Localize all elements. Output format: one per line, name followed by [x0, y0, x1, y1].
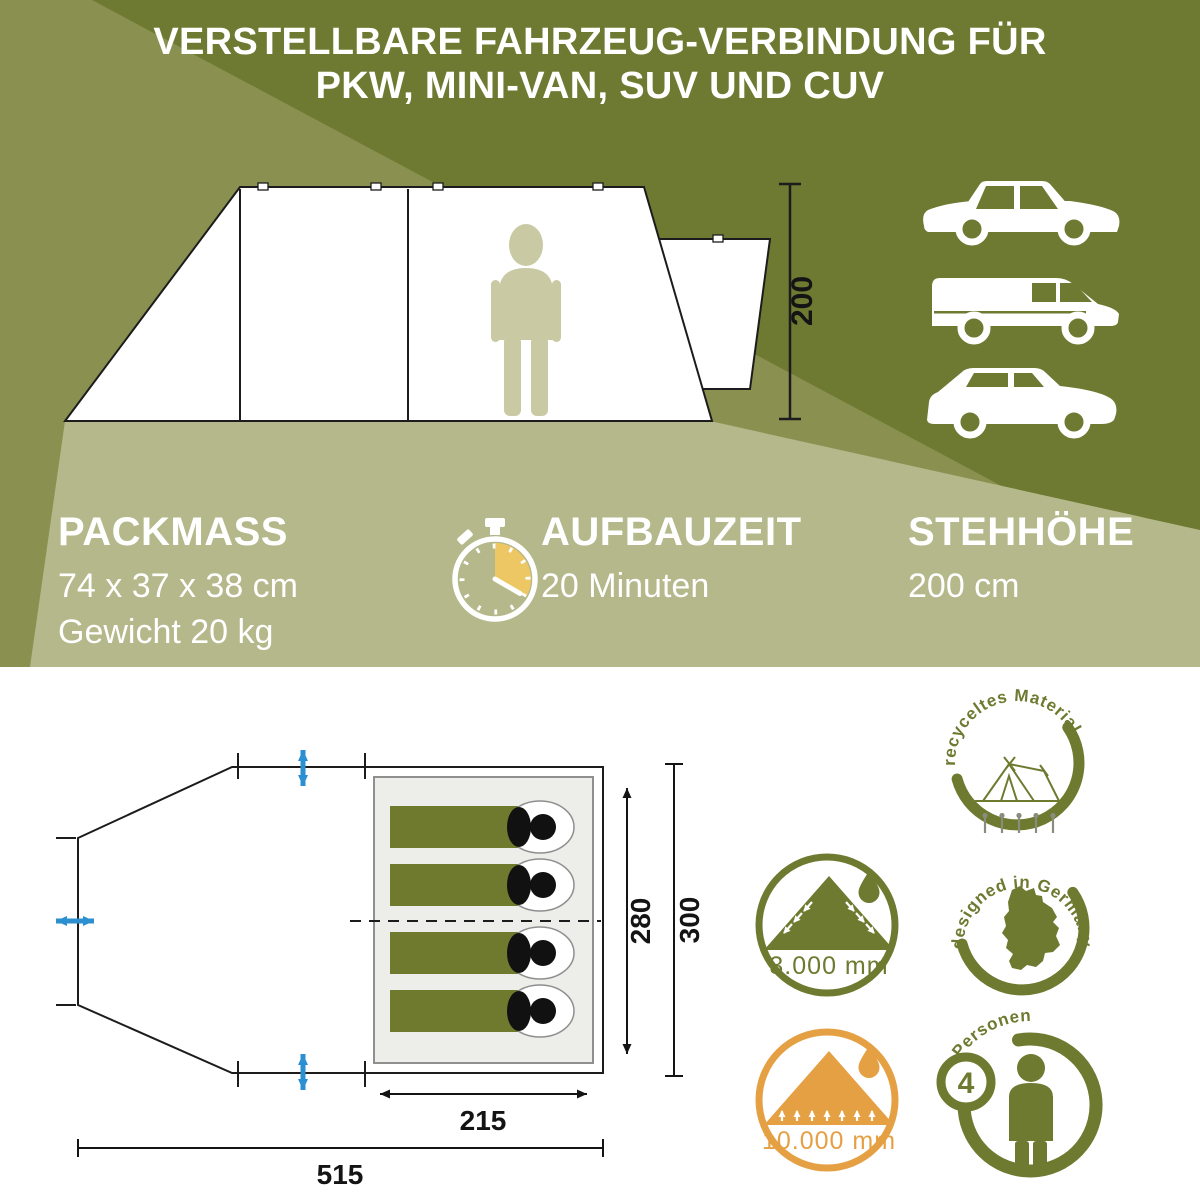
badge-watercolumn-3000: 3.000 mm [759, 857, 895, 993]
badge-3000-label: 3.000 mm [769, 952, 888, 980]
suv-icon [922, 360, 1122, 446]
spec-stehhoehe-heading: STEHHÖHE [908, 510, 1134, 555]
spec-stehhoehe-value: 200 cm [908, 564, 1134, 610]
sleeping-bag [390, 859, 574, 911]
spec-stehhoehe: STEHHÖHE 200 cm [908, 510, 1134, 610]
spec-packmass-weight: Gewicht 20 kg [58, 610, 298, 656]
headline-line1: VERSTELLBARE FAHRZEUG-VERBINDUNG FÜR [0, 20, 1200, 64]
badge-10000-label: 10.000 mm [762, 1127, 896, 1155]
person-icon [1009, 1054, 1053, 1171]
spec-packmass-heading: PACKMASS [58, 510, 298, 555]
sleeping-bag [390, 801, 574, 853]
dim-outer-width: 300 [674, 897, 705, 944]
badge-persons: Personen 4 [941, 1006, 1096, 1171]
headline: VERSTELLBARE FAHRZEUG-VERBINDUNG FÜR PKW… [0, 20, 1200, 108]
badge-watercolumn-10000: 10.000 mm [759, 1032, 896, 1168]
stopwatch-icon [447, 516, 543, 626]
infographic: 200 VERSTELLBARE FAHRZEUG-VERBINDUNG FÜR… [0, 0, 1200, 1200]
sleeping-bag [390, 927, 574, 979]
floor-plan: 280 300 215 515 [56, 750, 705, 1190]
person-count: 4 [958, 1067, 975, 1100]
badge-recycled-material: recyceltes Material [940, 686, 1085, 833]
dim-total-length: 515 [317, 1159, 364, 1190]
spec-packmass: PACKMASS 74 x 37 x 38 cm Gewicht 20 kg [58, 510, 298, 655]
spec-packmass-dimensions: 74 x 37 x 38 cm [58, 564, 298, 610]
dim-cabin-width: 280 [625, 898, 656, 945]
sedan-car-icon [920, 170, 1125, 252]
spec-aufbauzeit-heading: AUFBAUZEIT [541, 510, 802, 555]
mini-van-icon [926, 264, 1126, 352]
sleeping-bag [390, 985, 574, 1037]
tent-line-icon [975, 757, 1062, 801]
headline-line2: PKW, MINI-VAN, SUV UND CUV [0, 64, 1200, 108]
spec-aufbauzeit-value: 20 Minuten [541, 564, 802, 610]
dim-cabin-length: 215 [460, 1105, 507, 1136]
badge-designed-in-germany: designed in Germany [948, 873, 1095, 990]
spec-aufbauzeit: AUFBAUZEIT 20 Minuten [541, 510, 802, 610]
